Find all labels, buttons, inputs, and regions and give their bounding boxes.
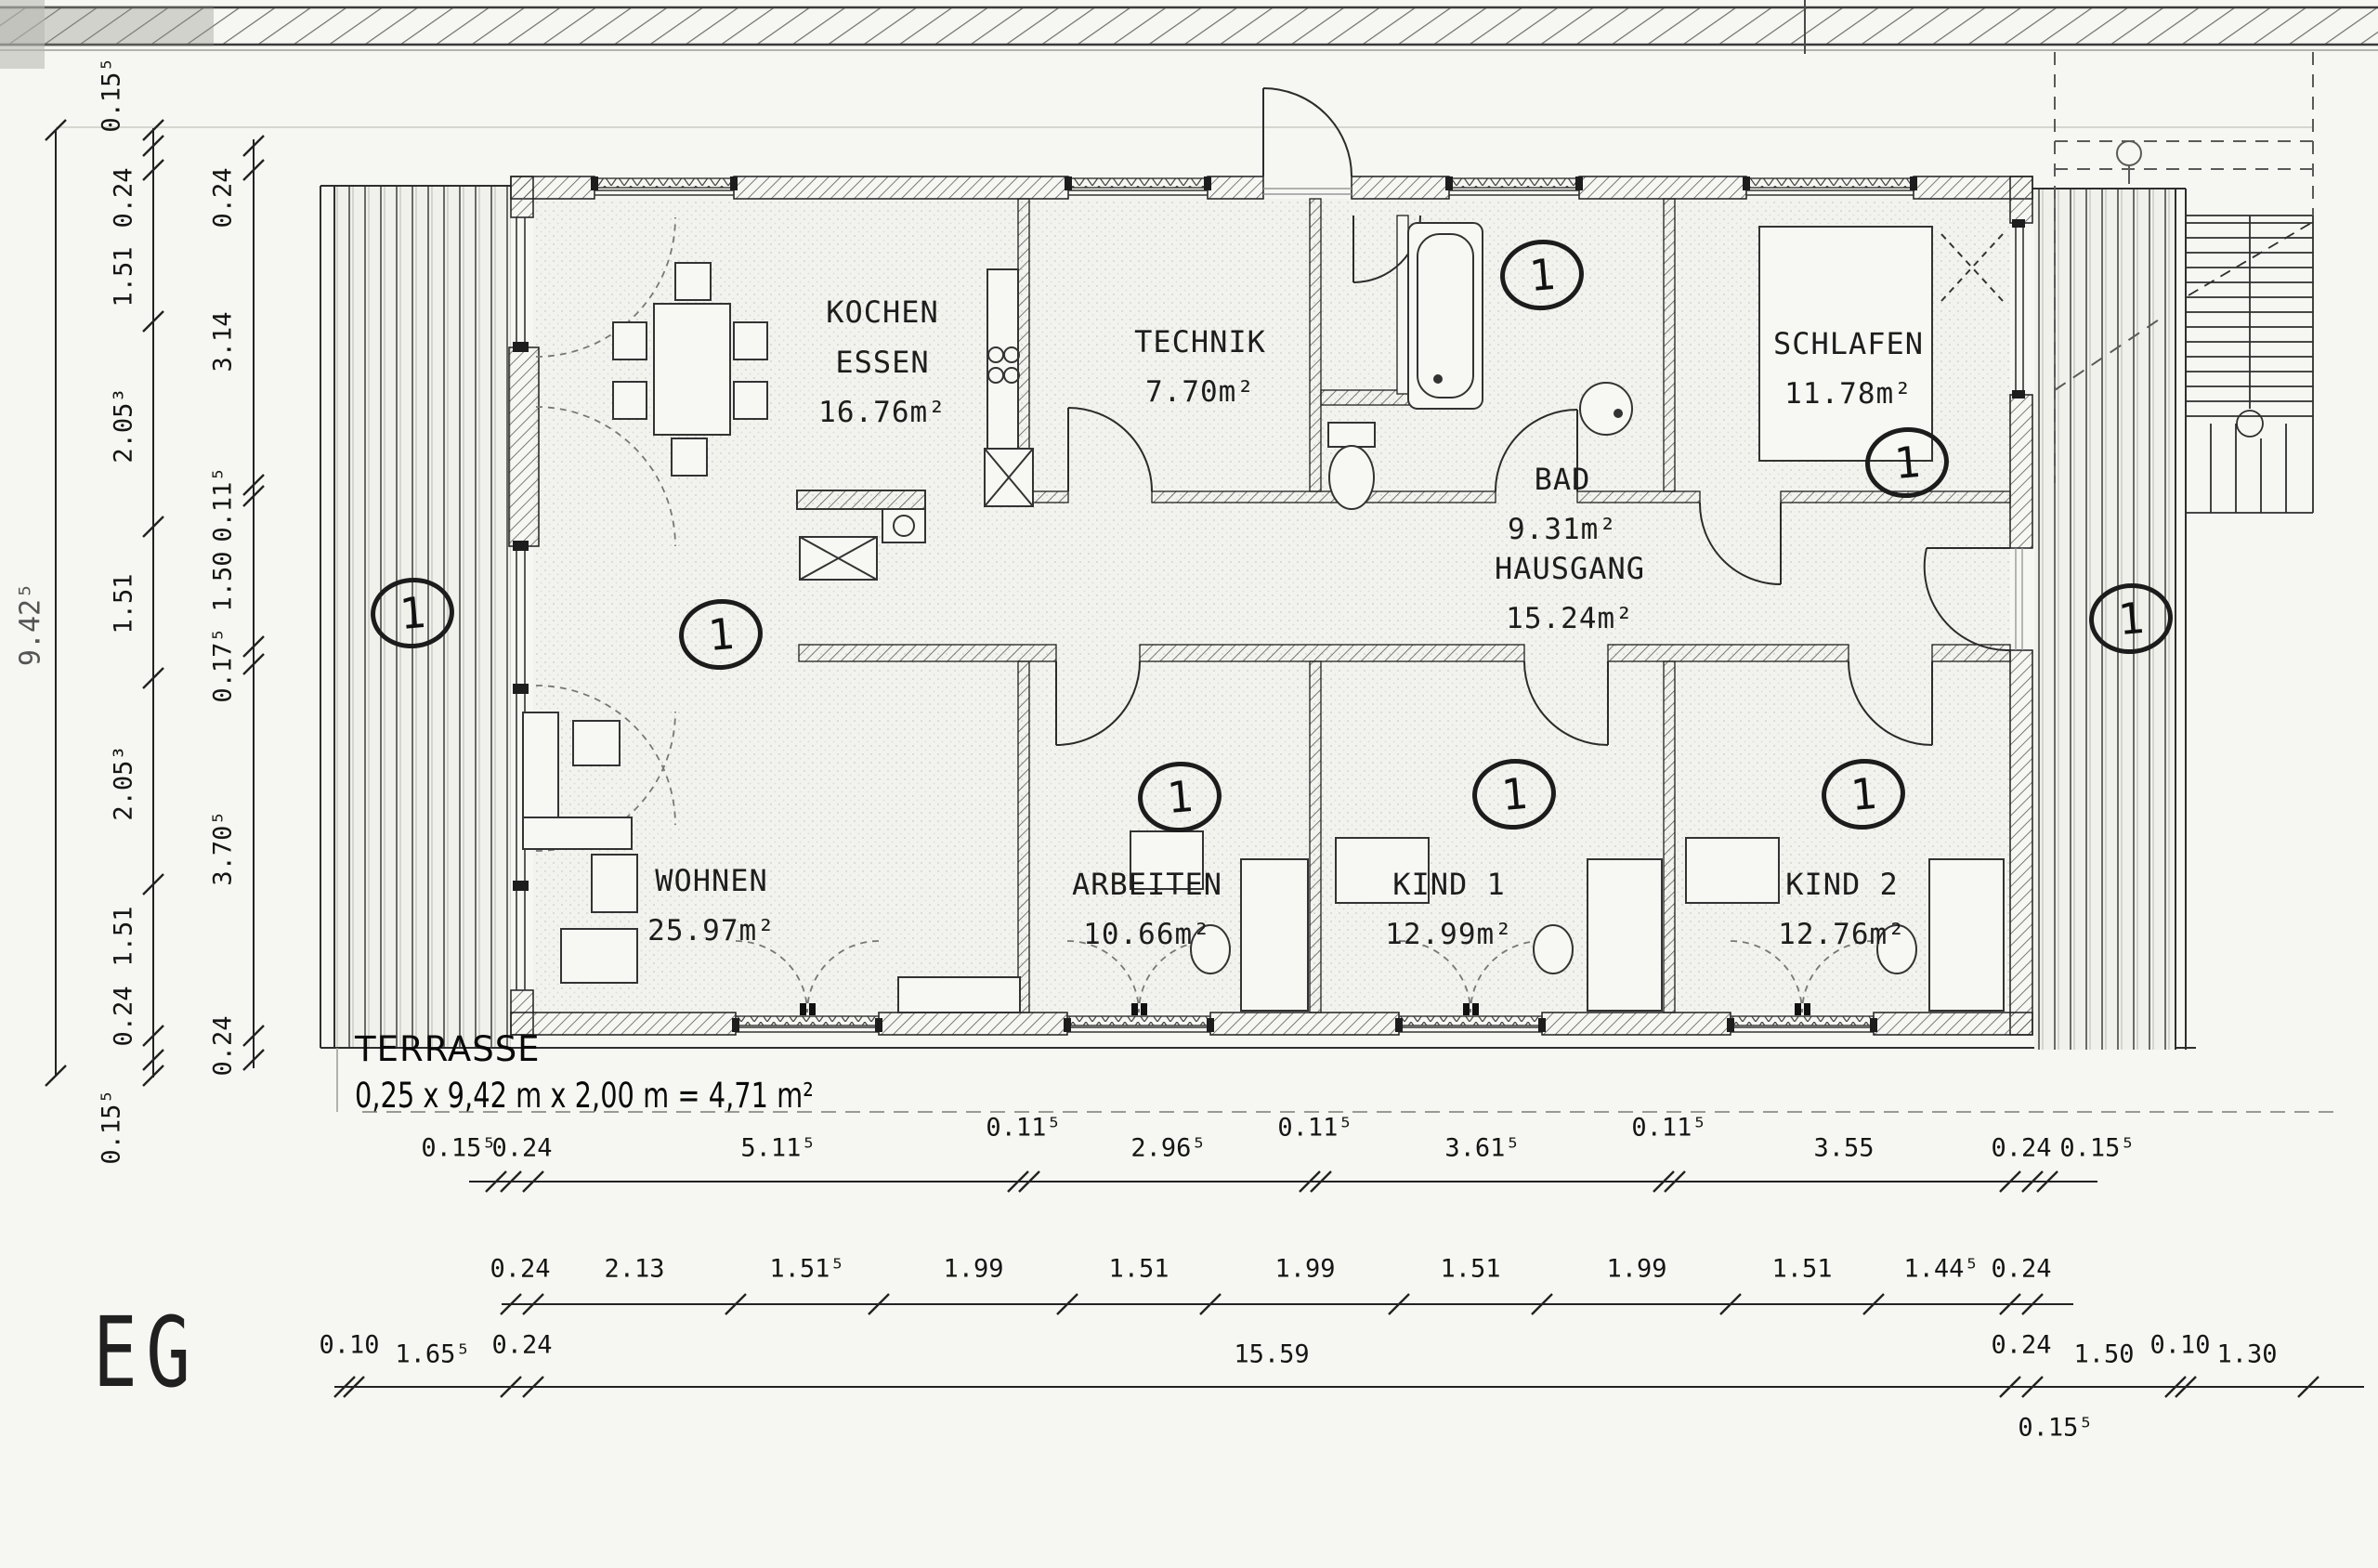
construction-type-marker: 1: [1135, 758, 1224, 836]
dimension-bottom-total: 0.10: [2149, 1331, 2210, 1360]
construction-type-marker: 1: [2086, 580, 2175, 658]
room-name: HAUSGANG: [1495, 543, 1645, 594]
dimension-bottom-total: 1.65⁵: [395, 1340, 470, 1369]
construction-type-marker: 1: [368, 574, 457, 652]
room-area-value: 12.76m²: [1778, 909, 1906, 960]
room-label-kochen-essen: KOCHENESSEN16.76m²: [818, 287, 947, 438]
dimension-bottom-total: 0.15⁵: [2018, 1414, 2093, 1443]
room-label-schlafen: SCHLAFEN11.78m²: [1773, 319, 1924, 419]
dimension-bottom-rooms: 1.99: [1274, 1255, 1335, 1284]
dimension-bottom-total: 0.24: [491, 1331, 552, 1360]
construction-type-marker: 1: [1497, 236, 1587, 314]
dimension-left-inner: 1.50: [209, 551, 238, 611]
room-name: KOCHEN: [818, 287, 947, 337]
room-name: SCHLAFEN: [1773, 319, 1924, 369]
room-name: TECHNIK: [1134, 317, 1266, 367]
room-label-hausgang: HAUSGANG15.24m²: [1495, 543, 1645, 644]
dimension-bottom-openings: 0.11⁵: [1277, 1114, 1352, 1143]
dimension-bottom-rooms: 0.24: [1991, 1255, 2051, 1284]
dimension-bottom-openings: 0.24: [491, 1134, 552, 1163]
dimension-bottom-rooms: 1.51⁵: [769, 1255, 844, 1284]
dimension-bottom-rooms: 1.99: [1606, 1255, 1666, 1284]
dimension-left-outer: 2.05³: [110, 745, 138, 820]
dimension-left-inner: 0.24: [209, 167, 238, 228]
room-label-kind-1: KIND 112.99m²: [1385, 859, 1513, 960]
room-label-wohnen: WOHNEN25.97m²: [647, 856, 776, 956]
room-name: WOHNEN: [647, 856, 776, 906]
dimension-bottom-openings: 5.11⁵: [740, 1134, 816, 1163]
room-area-value: 12.99m²: [1385, 909, 1513, 960]
room-area-value: 25.97m²: [647, 906, 776, 956]
construction-type-marker: 1: [676, 595, 765, 673]
dimension-bottom-rooms: 1.44⁵: [1903, 1255, 1979, 1284]
dimension-bottom-rooms: 1.51: [1108, 1255, 1169, 1284]
dimension-bottom-rooms: 0.24: [490, 1255, 550, 1284]
dimension-bottom-openings: 0.11⁵: [986, 1114, 1061, 1143]
room-label-bad: BAD9.31m²: [1508, 454, 1617, 555]
dimension-left-inner: 0.17⁵: [209, 627, 238, 702]
dimension-bottom-rooms: 1.51: [1771, 1255, 1832, 1284]
dimension-bottom-rooms: 2.13: [604, 1255, 664, 1284]
dimension-bottom-openings: 3.55: [1813, 1134, 1874, 1163]
room-area-value: 11.78m²: [1773, 369, 1924, 419]
floor-level-label: EG: [93, 1297, 200, 1409]
dimension-left-outer: 0.15⁵: [98, 1089, 126, 1164]
room-label-technik: TECHNIK7.70m²: [1134, 317, 1266, 417]
dimension-bottom-openings: 0.24: [1991, 1134, 2051, 1163]
dimension-left-outer: 0.24: [110, 986, 138, 1046]
room-label-kind-2: KIND 212.76m²: [1778, 859, 1906, 960]
dimension-left-outer: 1.51: [110, 573, 138, 634]
dimension-bottom-openings: 0.15⁵: [2059, 1134, 2135, 1163]
label-layer: TERRASSE 0,25 x 9,42 m x 2,00 m = 4,71 m…: [0, 0, 2378, 1568]
dimension-left-outer: 2.05³: [110, 387, 138, 463]
dimension-left-outer: 0.15⁵: [98, 57, 126, 132]
room-area-value: 7.70m²: [1134, 367, 1266, 417]
construction-type-marker: 1: [1470, 755, 1559, 833]
dimension-left-outer: 0.24: [110, 167, 138, 228]
dimension-total-height: 9.42⁵: [15, 582, 47, 666]
room-name: ARBEITEN: [1072, 859, 1222, 909]
construction-type-marker: 1: [1862, 424, 1952, 502]
room-name: KIND 2: [1778, 859, 1906, 909]
terrace-label: TERRASSE: [355, 1029, 541, 1069]
dimension-bottom-total: 0.24: [1991, 1331, 2051, 1360]
dimension-bottom-rooms: 1.51: [1440, 1255, 1500, 1284]
dimension-bottom-openings: 0.15⁵: [421, 1134, 496, 1163]
dimension-bottom-rooms: 1.99: [943, 1255, 1003, 1284]
dimension-bottom-total: 1.30: [2216, 1340, 2277, 1369]
room-area-value: 16.76m²: [818, 387, 947, 438]
room-label-arbeiten: ARBEITEN10.66m²: [1072, 859, 1222, 960]
dimension-bottom-total: 15.59: [1234, 1340, 1309, 1369]
room-name: KIND 1: [1385, 859, 1513, 909]
dimension-bottom-total: 0.10: [319, 1331, 379, 1360]
dimension-left-outer: 1.51: [110, 906, 138, 966]
dimension-left-inner: 3.14: [209, 311, 238, 372]
dimension-bottom-openings: 2.96⁵: [1130, 1134, 1206, 1163]
dimension-left-inner: 3.70⁵: [209, 810, 238, 885]
dimension-bottom-total: 1.50: [2073, 1340, 2134, 1369]
room-name: ESSEN: [818, 337, 947, 387]
dimension-bottom-openings: 0.11⁵: [1631, 1114, 1706, 1143]
construction-type-marker: 1: [1819, 755, 1908, 833]
room-name: BAD: [1508, 454, 1617, 504]
terrace-area-calculation: 0,25 x 9,42 m x 2,00 m = 4,71 m²: [355, 1076, 814, 1116]
room-area-value: 10.66m²: [1072, 909, 1222, 960]
floorplan-sheet: TERRASSE 0,25 x 9,42 m x 2,00 m = 4,71 m…: [0, 0, 2378, 1568]
dimension-left-inner: 0.24: [209, 1015, 238, 1076]
dimension-left-inner: 0.11⁵: [209, 466, 238, 542]
dimension-left-outer: 1.51: [110, 246, 138, 307]
room-area-value: 15.24m²: [1495, 594, 1645, 644]
dimension-bottom-openings: 3.61⁵: [1444, 1134, 1520, 1163]
